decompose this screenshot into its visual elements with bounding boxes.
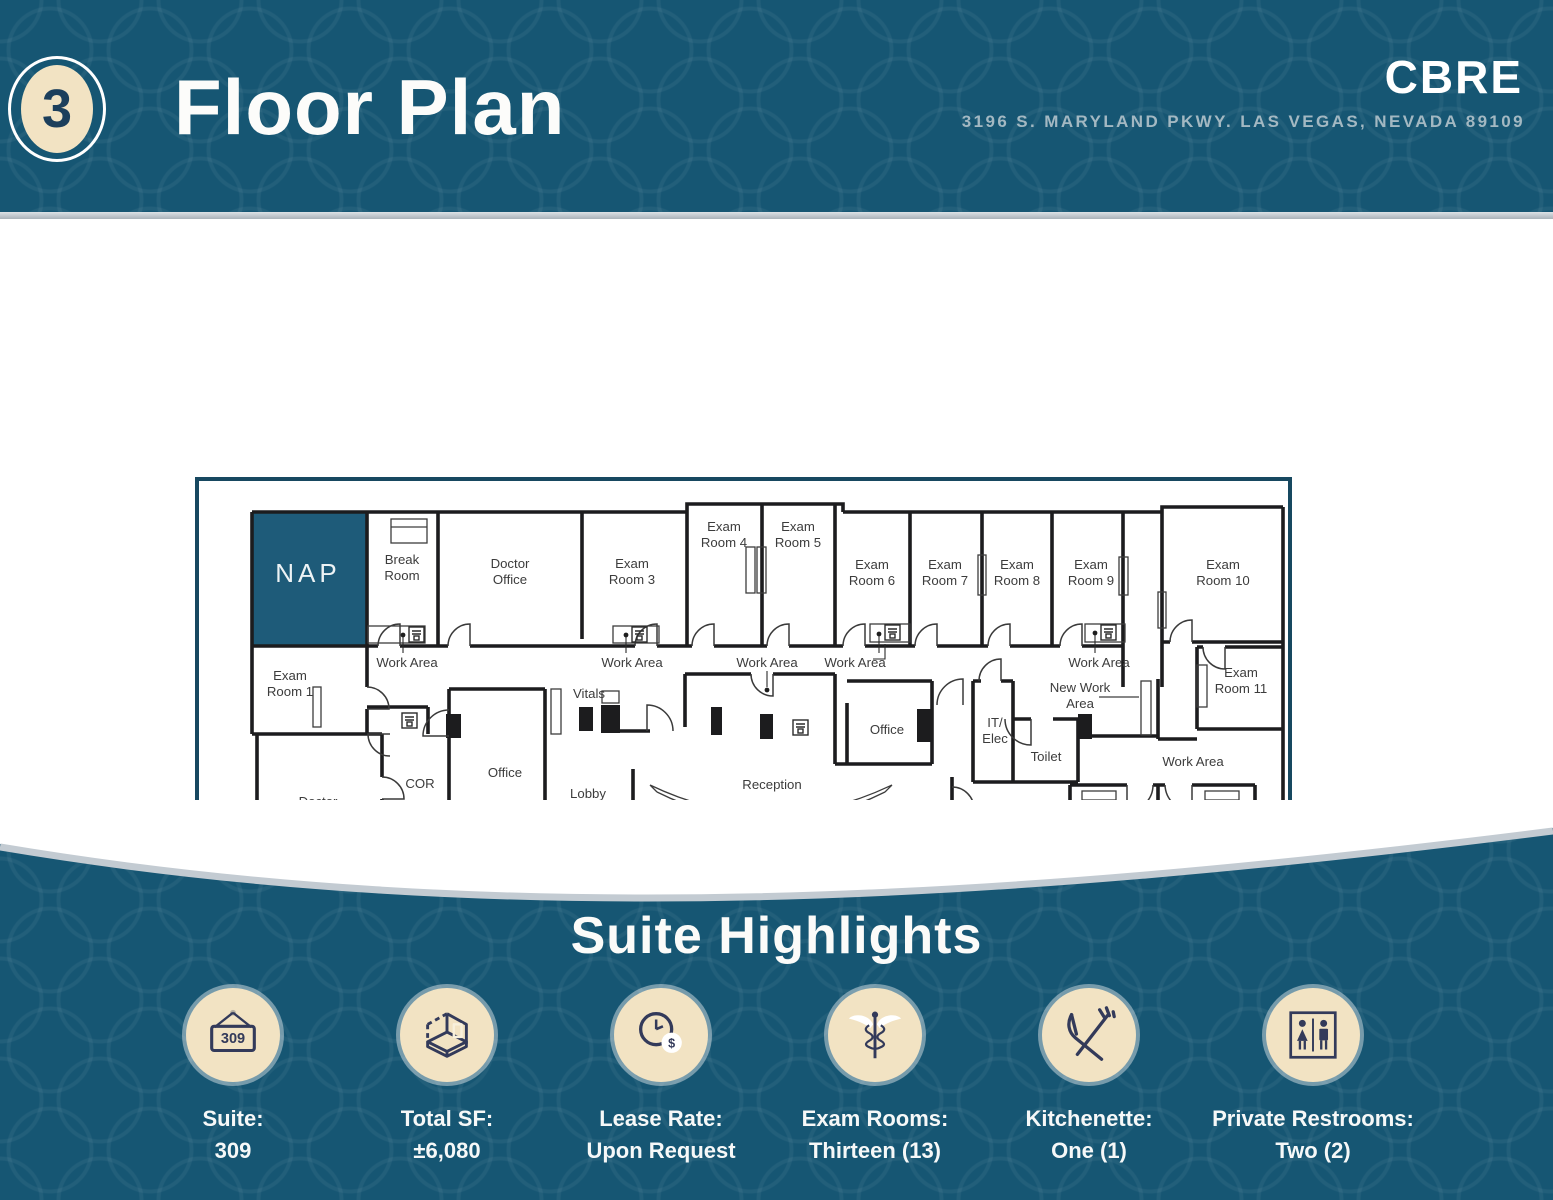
highlight-label: Exam Rooms: (770, 1106, 980, 1132)
suite-highlights-title: Suite Highlights (0, 906, 1553, 966)
page-title: Floor Plan (174, 62, 565, 153)
area-label: Work Area (1068, 655, 1130, 670)
room-label: Office (870, 722, 904, 737)
highlight-value: 309 (128, 1138, 338, 1164)
page-number: 3 (42, 78, 72, 140)
nap-area-label: NAP (275, 558, 340, 588)
room-label: Office (488, 765, 522, 780)
highlight-item-exam-rooms: Exam Rooms: Thirteen (13) (770, 988, 980, 1164)
area-label: Work Area (601, 655, 663, 670)
highlight-item-total-sf: Total SF: ±6,080 (342, 988, 552, 1164)
room-label: Toilet (1031, 749, 1062, 764)
highlight-label: Lease Rate: (556, 1106, 766, 1132)
room-label: ExamRoom 7 (922, 557, 968, 588)
area-label: Work Area (736, 655, 798, 670)
page-number-circle: 3 (21, 65, 93, 153)
floor-plan-section: NAPBreakRoomDoctorOfficeExamRoom 3ExamRo… (0, 219, 1553, 800)
room-label: ExamRoom 9 (1068, 557, 1114, 588)
room-label: ExamRoom 5 (775, 519, 821, 550)
highlight-label: Kitchenette: (984, 1106, 1194, 1132)
room-label: BreakRoom (384, 552, 419, 583)
room-label: DoctorOffice (491, 556, 530, 587)
room-label: Lobby (570, 786, 606, 801)
highlight-item-suite: 309 Suite: 309 (128, 988, 338, 1164)
caduceus-icon (828, 988, 922, 1082)
highlight-label: Suite: (128, 1106, 338, 1132)
suite-sign-icon: 309 (186, 988, 280, 1082)
area-label: Work Area (1162, 754, 1224, 769)
dollar-glyph: $ (668, 1037, 675, 1051)
highlight-items: 309 Suite: 309 Total SF: ±6,080 (128, 988, 1428, 1164)
highlight-value: Upon Request (556, 1138, 766, 1164)
room-label: Vitals (573, 686, 605, 701)
header-divider (0, 212, 1553, 219)
suite-highlights-section: Suite Highlights 309 Suite: 309 (0, 800, 1553, 1200)
room-label: ExamRoom 6 (849, 557, 895, 588)
highlight-item-lease-rate: $ Lease Rate: Upon Request (556, 988, 766, 1164)
highlight-value: One (1) (984, 1138, 1194, 1164)
area-label: Work Area (376, 655, 438, 670)
property-address: 3196 S. MARYLAND PKWY. LAS VEGAS, NEVADA… (962, 112, 1525, 132)
highlight-label: Total SF: (342, 1106, 552, 1132)
room-label: COR (405, 776, 434, 791)
highlight-item-kitchenette: Kitchenette: One (1) (984, 988, 1194, 1164)
cbre-logo: CBRE (1385, 50, 1523, 104)
flyer-page: 3 Floor Plan CBRE 3196 S. MARYLAND PKWY.… (0, 0, 1553, 1200)
sign-number: 309 (221, 1031, 245, 1047)
room-label: ExamRoom 4 (701, 519, 747, 550)
highlight-label: Private Restrooms: (1198, 1106, 1428, 1132)
highlight-value: ±6,080 (342, 1138, 552, 1164)
room-label: ExamRoom 8 (994, 557, 1040, 588)
utensils-icon (1042, 988, 1136, 1082)
highlight-value: Thirteen (13) (770, 1138, 980, 1164)
area-label: Work Area (824, 655, 886, 670)
header: 3 Floor Plan CBRE 3196 S. MARYLAND PKWY.… (0, 0, 1553, 212)
room-label: Reception (742, 777, 801, 792)
lease-clock-icon: $ (614, 988, 708, 1082)
floor-area-icon (400, 988, 494, 1082)
page-number-badge: 3 (8, 56, 106, 162)
highlight-value: Two (2) (1198, 1138, 1428, 1164)
highlight-item-restrooms: Private Restrooms: Two (2) (1198, 988, 1428, 1164)
room-label: ExamRoom 1 (267, 668, 313, 699)
room-label: ExamRoom 3 (609, 556, 655, 587)
restrooms-icon (1266, 988, 1360, 1082)
